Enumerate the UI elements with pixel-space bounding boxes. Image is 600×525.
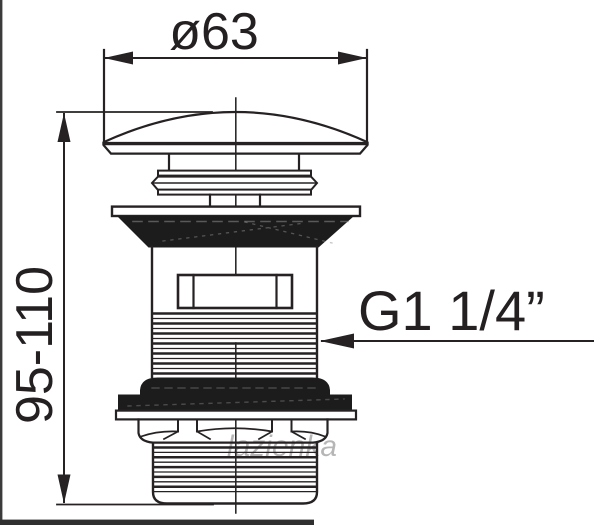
arrowhead-down-icon [58, 475, 71, 504]
arrowhead-right-icon [338, 52, 367, 65]
drain-valve-drawing: lazienka ø63 [0, 0, 600, 525]
thread-size-label: G1 1/4” [358, 279, 545, 342]
photo-edge-left [0, 0, 2, 525]
arrowhead-left-icon [104, 52, 133, 65]
rubber-washer [118, 395, 352, 412]
arrowhead-up-icon [58, 113, 71, 142]
technical-drawing-page: lazienka ø63 [0, 0, 600, 525]
seal-rings [152, 171, 317, 195]
thread-lines-thick [153, 314, 316, 374]
body-walls [152, 247, 317, 377]
linework: ø63 [6, 3, 593, 513]
seal-plate-top [158, 171, 311, 176]
overflow-window-frame [178, 275, 292, 308]
upper-gasket [117, 216, 354, 248]
photo-edge-bottom [0, 520, 314, 525]
cap-stem [169, 154, 299, 171]
sink-flange [112, 207, 360, 216]
metal-washer [116, 411, 356, 420]
overflow-window [178, 275, 292, 308]
callout-thread-size: G1 1/4” [320, 279, 593, 349]
upper-thread [153, 314, 316, 374]
rubber-washer-body [118, 395, 352, 412]
dimension-diameter: ø63 [104, 3, 367, 65]
cone-gasket-body [140, 378, 330, 397]
arrowhead-leader-icon [320, 334, 354, 349]
diameter-label: ø63 [169, 3, 259, 61]
cone-gasket [140, 378, 330, 397]
height-range-label: 95-110 [6, 266, 64, 424]
seal-plate-bottom [158, 190, 311, 195]
